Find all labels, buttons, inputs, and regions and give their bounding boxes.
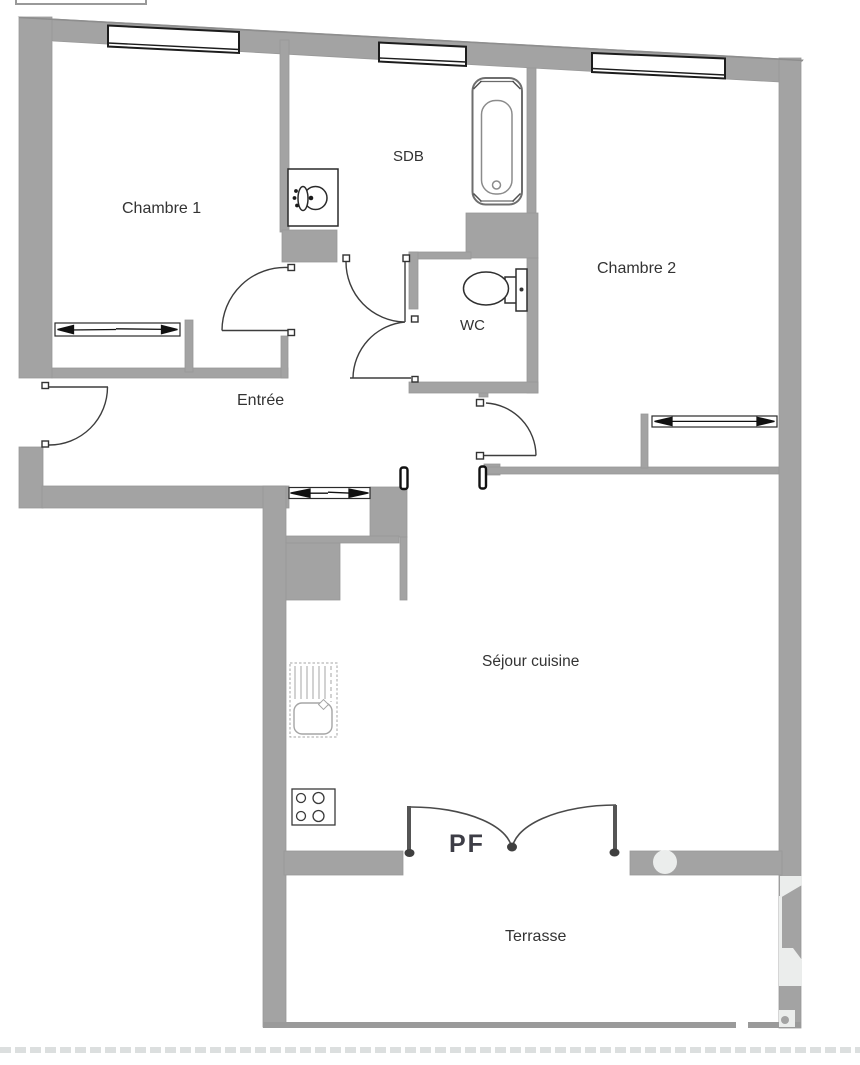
svg-text:Séjour cuisine: Séjour cuisine [482, 653, 579, 670]
svg-text:PF: PF [449, 830, 485, 858]
svg-text:Chambre 1: Chambre 1 [122, 200, 201, 217]
svg-text:Terrasse: Terrasse [505, 928, 566, 945]
svg-text:SDB: SDB [393, 148, 424, 165]
svg-text:WC: WC [460, 317, 485, 334]
svg-text:Chambre 2: Chambre 2 [597, 260, 676, 277]
svg-text:Entrée: Entrée [237, 392, 284, 409]
